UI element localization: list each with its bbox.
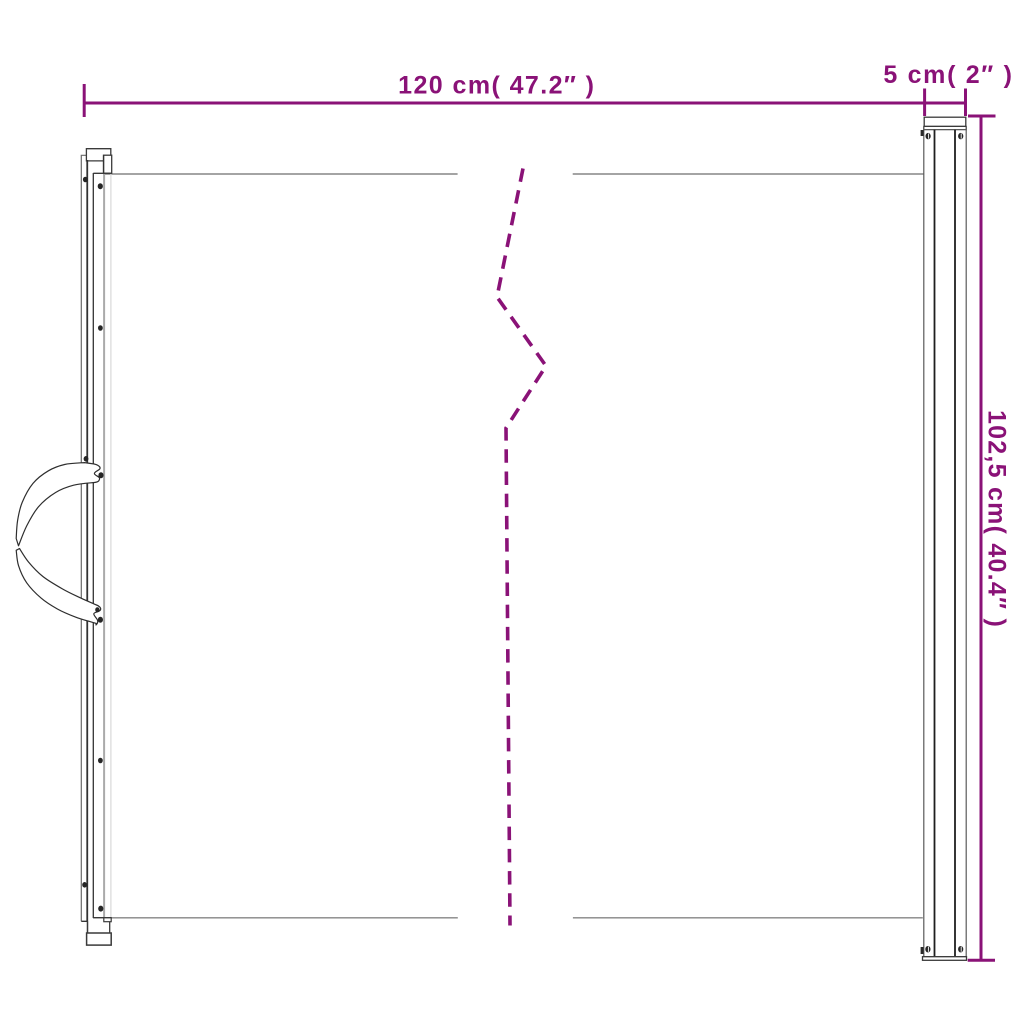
svg-text:120 cm( 47.2″ ): 120 cm( 47.2″ ) bbox=[398, 71, 595, 99]
svg-text:5 cm( 2″ ): 5 cm( 2″ ) bbox=[883, 61, 1013, 89]
svg-text:102,5 cm( 40.4″ ): 102,5 cm( 40.4″ ) bbox=[983, 410, 1011, 628]
